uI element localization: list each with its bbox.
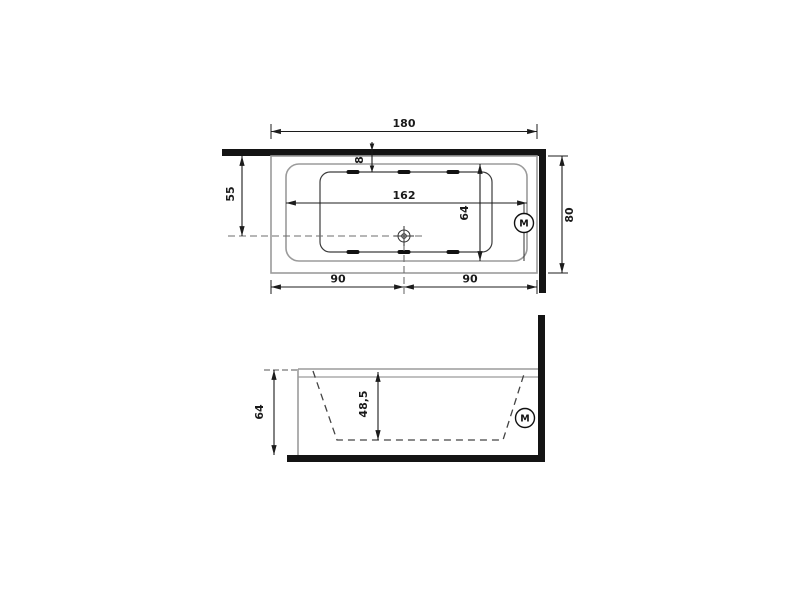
drain-icon (394, 226, 414, 246)
motor-plan: M (515, 203, 534, 261)
jets (347, 170, 460, 254)
motor-section: M (516, 409, 535, 428)
plan-view: M 180 8 55 162 64 (224, 117, 576, 294)
dim-label-64-plan: 64 (458, 205, 471, 221)
bathtub-drawing: M 180 8 55 162 64 (0, 0, 800, 600)
section-view: M 64 48,5 (253, 369, 538, 455)
dim-rim-width: 64 (458, 164, 480, 261)
right-wall-section (538, 315, 545, 462)
floor-section (287, 455, 545, 462)
dim-label-180: 180 (393, 117, 416, 130)
dim-overall-length: 180 (271, 117, 537, 139)
dim-label-90-left: 90 (330, 273, 346, 286)
dim-rim-length: 162 (286, 189, 527, 203)
dim-rim-to-basin: 8 (353, 142, 374, 172)
jet-icon (398, 170, 411, 174)
right-wall-plan (539, 149, 546, 293)
dim-label-64-section: 64 (253, 404, 266, 420)
jet-icon (347, 170, 360, 174)
dim-drain-offset: 55 (224, 156, 242, 236)
dim-label-162: 162 (393, 189, 416, 202)
technical-drawing-page: M 180 8 55 162 64 (0, 0, 800, 600)
motor-label: M (519, 219, 528, 230)
top-wall-plan (222, 149, 546, 156)
dim-basin-depth: 48,5 (357, 372, 378, 440)
dim-label-90-right: 90 (462, 273, 478, 286)
motor-label: M (520, 414, 529, 425)
jet-icon (347, 250, 360, 254)
dim-label-8: 8 (353, 156, 366, 164)
jet-icon (447, 170, 460, 174)
dim-label-48-5: 48,5 (357, 390, 370, 417)
dim-overall-width: 80 (548, 156, 576, 273)
basin-profile-hidden (313, 371, 525, 440)
dim-overall-height: 64 (253, 370, 297, 455)
jet-icon (447, 250, 460, 254)
dim-label-55: 55 (224, 186, 237, 201)
dim-label-80: 80 (563, 207, 576, 223)
